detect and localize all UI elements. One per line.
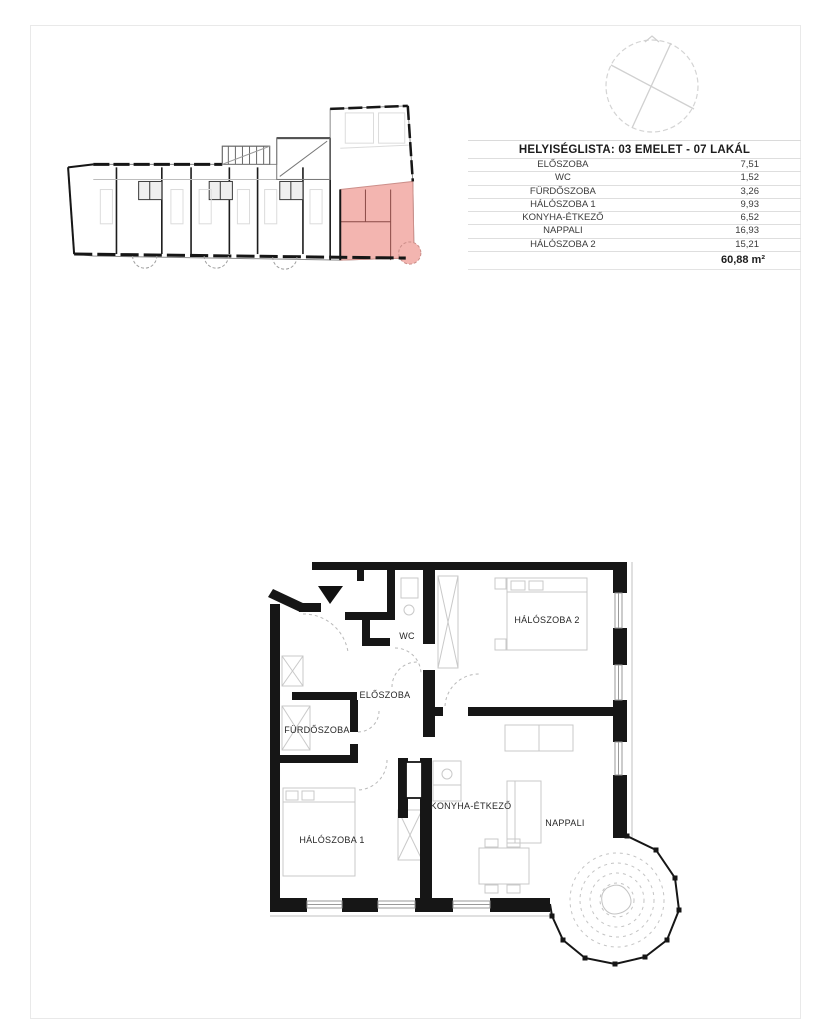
room-name: WC [468,172,658,184]
entrance-arrow-icon [318,586,343,604]
room-label-konyha-etkezo: KONYHA-ÉTKEZŐ [431,801,512,811]
room-area: 16,93 [658,225,801,237]
door-arcs [303,614,479,790]
main-floor-plan: WC HÁLÓSZOBA 2 ELŐSZOBA FÜRDŐSZOBA HÁLÓS… [255,548,715,968]
room-name: HÁLÓSZOBA 2 [468,239,658,251]
room-label-haloszoba2: HÁLÓSZOBA 2 [514,615,579,625]
room-label-haloszoba1: HÁLÓSZOBA 1 [299,835,364,845]
table-row: KONYHA-ÉTKEZŐ 6,52 [468,211,801,224]
floor-plan-document: HELYISÉGLISTA: 03 EMELET - 07 LAKÁL ELŐS… [0,0,827,1024]
round-bay [550,834,682,967]
room-label-eloszoba: ELŐSZOBA [360,690,411,700]
room-area: 9,93 [658,199,801,211]
building-outline [68,106,421,269]
highlighted-unit-turret [399,242,421,264]
room-area: 7,51 [658,159,801,171]
room-label-wc: WC [399,631,415,641]
kitchen-door-leaf [406,762,422,798]
room-name: NAPPALI [468,225,658,237]
page-frame-left [30,25,31,1019]
room-area: 3,26 [658,186,801,198]
room-list-title: HELYISÉGLISTA: 03 EMELET - 07 LAKÁL [468,140,801,158]
total-area: 60,88 m² [468,251,801,269]
page-frame-bottom [30,1018,801,1019]
room-name: FÜRDŐSZOBA [468,186,658,198]
table-row: HÁLÓSZOBA 1 9,93 [468,198,801,211]
room-list-table: HELYISÉGLISTA: 03 EMELET - 07 LAKÁL ELŐS… [468,140,801,273]
table-row: HÁLÓSZOBA 2 15,21 [468,238,801,251]
page-frame-top [30,25,801,26]
table-row: ELŐSZOBA 7,51 [468,158,801,171]
table-row: WC 1,52 [468,171,801,184]
room-name: HÁLÓSZOBA 1 [468,199,658,211]
room-label-furdoszoba: FÜRDŐSZOBA [284,725,350,735]
building-overview-plan [58,92,436,280]
room-label-nappali: NAPPALI [545,818,584,828]
room-area: 6,52 [658,212,801,224]
table-row: FÜRDŐSZOBA 3,26 [468,185,801,198]
table-row: NAPPALI 16,93 [468,224,801,237]
room-name: ELŐSZOBA [468,159,658,171]
table-bottom-rule [468,269,801,273]
room-area: 1,52 [658,172,801,184]
room-area: 15,21 [658,239,801,251]
room-name: KONYHA-ÉTKEZŐ [468,212,658,224]
north-compass-icon [595,33,710,141]
